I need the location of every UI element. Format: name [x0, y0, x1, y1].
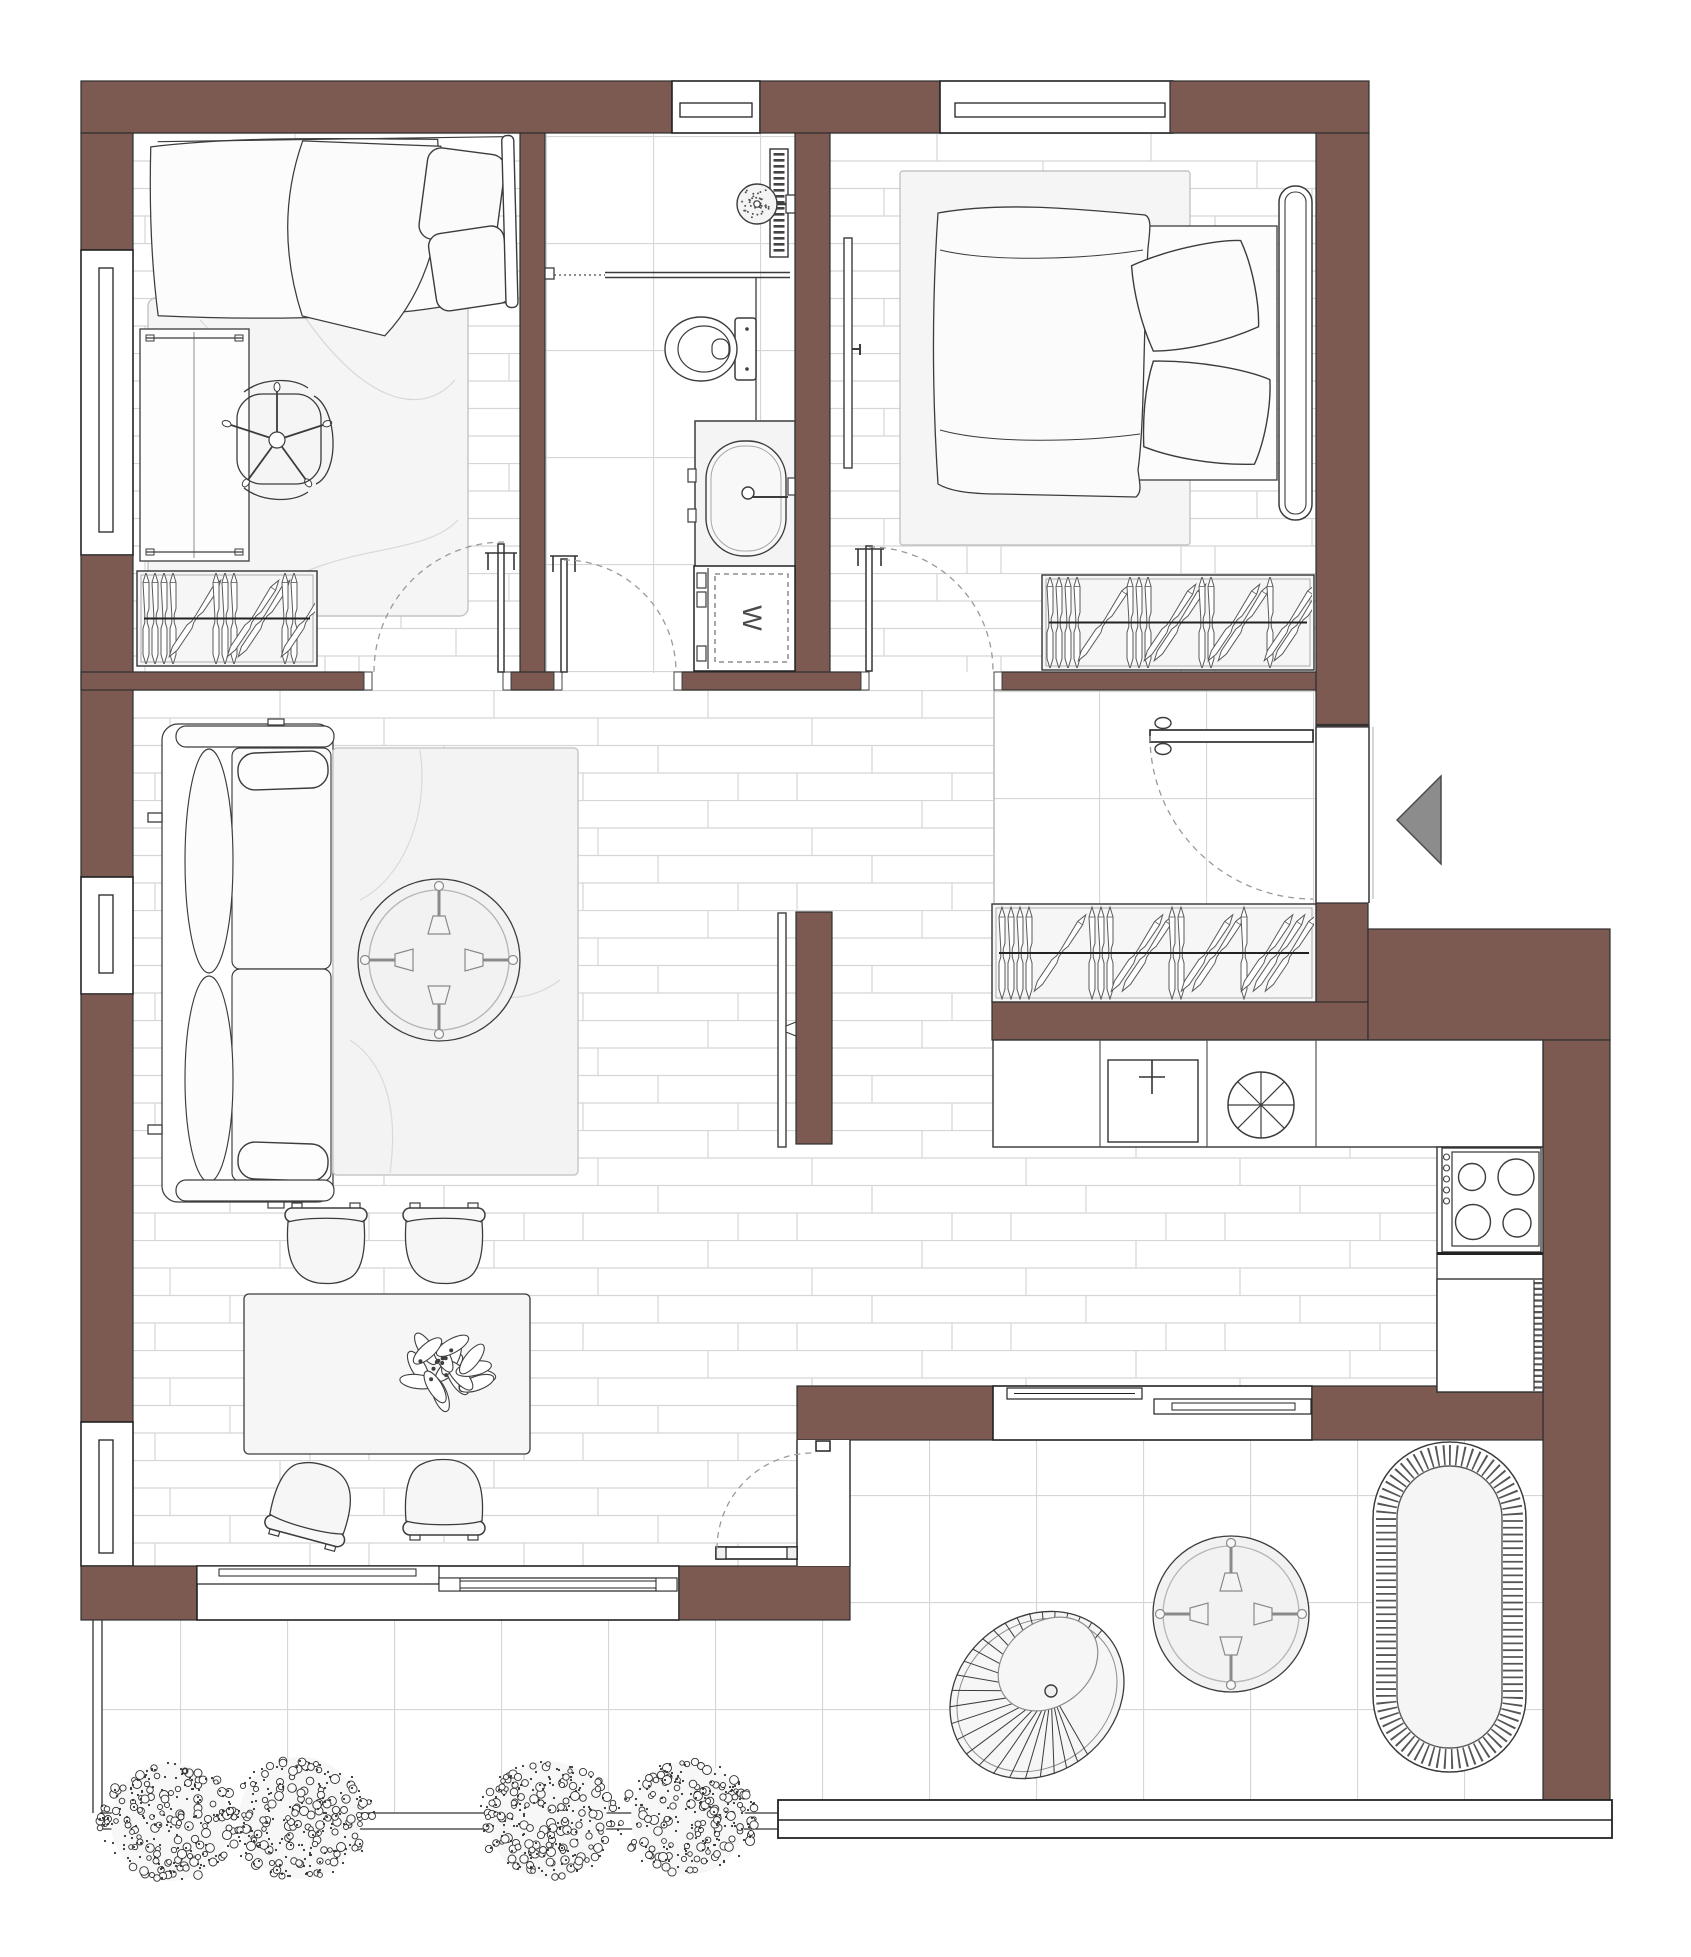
svg-text:W: W: [737, 605, 767, 631]
